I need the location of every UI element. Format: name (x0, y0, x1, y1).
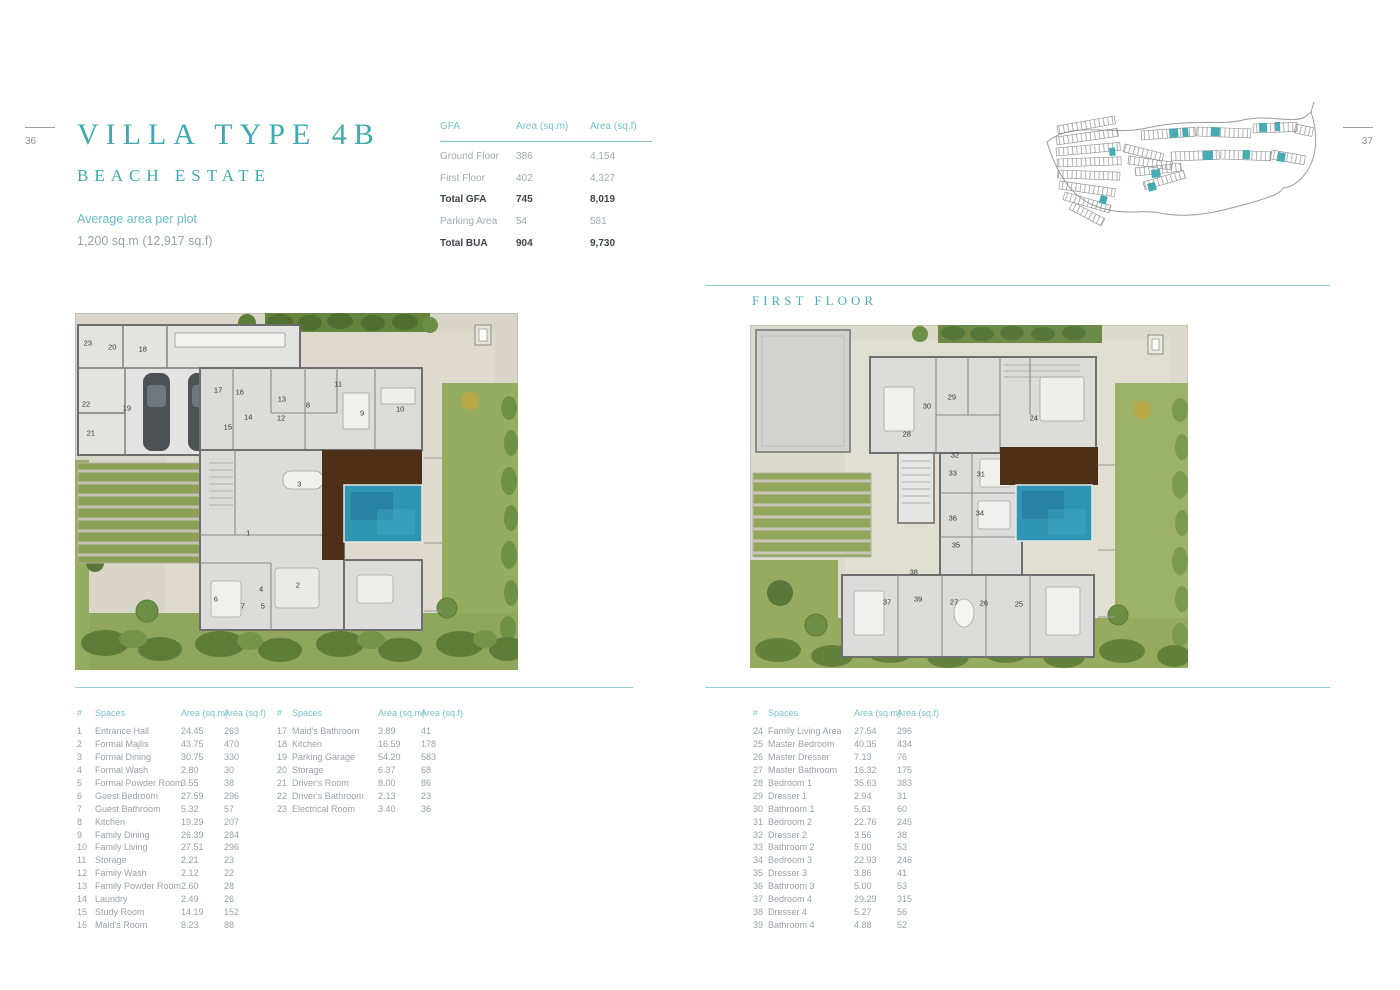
num: 22 (277, 789, 292, 802)
num: 39 (753, 918, 768, 931)
num: 2 (77, 738, 95, 751)
sqm: 29.29 (854, 893, 897, 906)
space-row: 20Storage6.3768 (277, 764, 461, 777)
spaces-header-row: # Spaces Area (sq.m) Area (sq.f) (753, 708, 937, 725)
name: Entrance Hall (95, 725, 181, 738)
sqm: 2.12 (181, 867, 224, 880)
name: Bedroom 3 (768, 854, 854, 867)
sqm: 27.59 (181, 789, 224, 802)
sqm: 386 (516, 142, 590, 168)
room-number: 3 (297, 480, 301, 488)
sqf: 76 (897, 751, 937, 764)
sqm: 24.45 (181, 725, 224, 738)
sqf: 8,019 (590, 189, 652, 211)
sqm: 16.59 (378, 738, 421, 751)
sqf: 296 (897, 725, 937, 738)
sqf: 38 (897, 828, 937, 841)
room-number: 9 (360, 409, 364, 417)
sqf: 23 (421, 789, 461, 802)
sqm: 2.13 (378, 789, 421, 802)
col-num: # (277, 708, 292, 725)
name: Formal Wash (95, 764, 181, 777)
num: 12 (77, 867, 95, 880)
sqf: 22 (224, 867, 264, 880)
num: 32 (753, 828, 768, 841)
space-row: 32Dresser 23.5638 (753, 828, 937, 841)
space-row: 18Kitchen16.59178 (277, 738, 461, 751)
room-number: 8 (306, 401, 310, 409)
room-number: 33 (949, 469, 957, 477)
sqm: 43.75 (181, 738, 224, 751)
site-map-graphic (1043, 100, 1325, 228)
space-row: 1Entrance Hall24.45263 (77, 725, 264, 738)
sqf: 296 (224, 789, 264, 802)
sqf: 175 (897, 764, 937, 777)
gfa-header-sqf: Area (sq.f) (590, 121, 652, 142)
sqf: 28 (224, 880, 264, 893)
sqm: 904 (516, 232, 590, 254)
sqm: 3.56 (854, 828, 897, 841)
page-rule-right (1343, 127, 1373, 128)
col-spaces: Spaces (768, 708, 854, 725)
col-spaces: Spaces (292, 708, 378, 725)
room-number: 13 (278, 395, 286, 403)
space-row: 16Maid's Room8.2388 (77, 918, 264, 931)
sqf: 41 (897, 867, 937, 880)
name: Storage (292, 764, 378, 777)
name: Bathroom 3 (768, 880, 854, 893)
name: Family Living (95, 841, 181, 854)
sqm: 16.32 (854, 764, 897, 777)
sqm: 14.19 (181, 905, 224, 918)
sqm: 7.13 (854, 751, 897, 764)
num: 11 (77, 854, 95, 867)
room-number: 21 (87, 429, 95, 437)
sqm: 27.51 (181, 841, 224, 854)
room-number: 2 (296, 581, 300, 589)
space-row: 22Driver's Bathroom2.1323 (277, 789, 461, 802)
sqf: 315 (897, 893, 937, 906)
sqf: 470 (224, 738, 264, 751)
first-floor-top-line (705, 285, 1330, 286)
sqf: 296 (224, 841, 264, 854)
sqf: 68 (421, 764, 461, 777)
sqf: 23 (224, 854, 264, 867)
room-number: 5 (261, 602, 265, 610)
name: Bathroom 1 (768, 802, 854, 815)
sqm: 22.76 (854, 815, 897, 828)
sqm: 3.55 (181, 777, 224, 790)
sqf: 60 (897, 802, 937, 815)
name: Driver's Room (292, 777, 378, 790)
num: 4 (77, 764, 95, 777)
name: Dresser 1 (768, 789, 854, 802)
space-row: 17Maid's Bathroom3.8941 (277, 725, 461, 738)
num: 36 (753, 880, 768, 893)
space-row: 36Bathroom 35.0053 (753, 880, 937, 893)
name: Family Living Area (768, 725, 854, 738)
col-sqf: Area (sq.f) (897, 708, 937, 725)
room-number: 37 (883, 598, 891, 606)
space-row: 37Bedroom 429.29315 (753, 893, 937, 906)
space-row: 23Electrical Room3.4036 (277, 802, 461, 815)
name: Study Room (95, 905, 181, 918)
num: 33 (753, 841, 768, 854)
sqf: 4,327 (590, 168, 652, 190)
sqm: 6.37 (378, 764, 421, 777)
room-number: 32 (951, 451, 959, 459)
num: 16 (77, 918, 95, 931)
name: Dresser 3 (768, 867, 854, 880)
name: Formal Powder Room (95, 777, 181, 790)
room-number: 15 (224, 423, 232, 431)
title-block: VILLA TYPE 4B BEACH ESTATE Average area … (77, 118, 381, 248)
sqf: 38 (224, 777, 264, 790)
room-number: 27 (950, 598, 958, 606)
room-number: 28 (903, 430, 911, 438)
sqm: 402 (516, 168, 590, 190)
sqf: 30 (224, 764, 264, 777)
name: Family Powder Room (95, 880, 181, 893)
ground-floor-plan-graphic (75, 313, 518, 670)
sqm: 8.23 (181, 918, 224, 931)
label: Total GFA (440, 189, 516, 211)
site-map (1043, 100, 1325, 228)
sqf: 581 (590, 211, 652, 233)
sqm: 745 (516, 189, 590, 211)
sqm: 54.20 (378, 751, 421, 764)
room-number: 34 (976, 509, 984, 517)
space-row: 33Bathroom 25.0053 (753, 841, 937, 854)
sqf: 36 (421, 802, 461, 815)
gfa-row: Total BUA9049,730 (440, 232, 652, 254)
space-row: 28Bedroom 135.63383 (753, 777, 937, 790)
name: Bedroom 4 (768, 893, 854, 906)
space-row: 29Dresser 12.9431 (753, 789, 937, 802)
col-sqf: Area (sq.f) (224, 708, 264, 725)
sqm: 26.39 (181, 828, 224, 841)
num: 1 (77, 725, 95, 738)
gfa-header-sqm: Area (sq.m) (516, 121, 590, 142)
sqf: 86 (421, 777, 461, 790)
space-row: 15Study Room14.19152 (77, 905, 264, 918)
space-row: 24Family Living Area27.54296 (753, 725, 937, 738)
num: 10 (77, 841, 95, 854)
spaces-header-row: # Spaces Area (sq.m) Area (sq.f) (77, 708, 264, 725)
num: 29 (753, 789, 768, 802)
col-num: # (753, 708, 768, 725)
name: Formal Majlis (95, 738, 181, 751)
name: Driver's Bathroom (292, 789, 378, 802)
name: Dresser 4 (768, 905, 854, 918)
room-number: 11 (334, 380, 342, 388)
sqm: 3.40 (378, 802, 421, 815)
sqm: 5.61 (854, 802, 897, 815)
sqf: 245 (897, 815, 937, 828)
room-number: 14 (244, 413, 252, 421)
name: Bathroom 2 (768, 841, 854, 854)
spaces-header-row: # Spaces Area (sq.m) Area (sq.f) (277, 708, 461, 725)
sqf: 207 (224, 815, 264, 828)
sqm: 5.32 (181, 802, 224, 815)
sqm: 2.21 (181, 854, 224, 867)
room-number: 17 (214, 386, 222, 394)
label: Parking Area (440, 211, 516, 233)
space-row: 10Family Living27.51296 (77, 841, 264, 854)
gfa-header-row: GFA Area (sq.m) Area (sq.f) (440, 121, 652, 142)
room-number: 19 (123, 404, 131, 412)
sqm: 19.29 (181, 815, 224, 828)
name: Master Bedroom (768, 738, 854, 751)
num: 5 (77, 777, 95, 790)
sqf: 9,730 (590, 232, 652, 254)
room-number: 29 (948, 393, 956, 401)
sqf: 383 (897, 777, 937, 790)
room-number: 38 (910, 568, 918, 576)
name: Guest Bedroom (95, 789, 181, 802)
num: 21 (277, 777, 292, 790)
num: 23 (277, 802, 292, 815)
room-number: 16 (236, 388, 244, 396)
num: 37 (753, 893, 768, 906)
sqf: 41 (421, 725, 461, 738)
name: Electrical Room (292, 802, 378, 815)
first-floor-label: FIRST FLOOR (752, 293, 877, 309)
page-number-right-value: 37 (1343, 136, 1373, 147)
page-title: VILLA TYPE 4B (77, 118, 381, 152)
first-floor-plan: 24252627282930313233343536373839 (750, 325, 1188, 668)
col-num: # (77, 708, 95, 725)
sqf: 56 (897, 905, 937, 918)
name: Storage (95, 854, 181, 867)
space-row: 4Formal Wash2.8030 (77, 764, 264, 777)
num: 18 (277, 738, 292, 751)
sqf: 246 (897, 854, 937, 867)
num: 8 (77, 815, 95, 828)
room-number: 26 (980, 599, 988, 607)
sqf: 178 (421, 738, 461, 751)
gfa-row: Total GFA7458,019 (440, 189, 652, 211)
page-rule-left (25, 127, 55, 128)
col-sqm: Area (sq.m) (181, 708, 224, 725)
space-row: 25Master Bedroom40.35434 (753, 738, 937, 751)
num: 17 (277, 725, 292, 738)
room-number: 22 (82, 400, 90, 408)
page-number-right: 37 (1343, 127, 1373, 147)
sqf: 53 (897, 880, 937, 893)
room-number: 4 (259, 585, 263, 593)
space-row: 35Dresser 33.8641 (753, 867, 937, 880)
sqf: 31 (897, 789, 937, 802)
sqm: 4.88 (854, 918, 897, 931)
room-number: 12 (277, 414, 285, 422)
num: 30 (753, 802, 768, 815)
sqm: 27.54 (854, 725, 897, 738)
sqf: 330 (224, 751, 264, 764)
space-row: 38Dresser 45.2756 (753, 905, 937, 918)
num: 19 (277, 751, 292, 764)
left-divider-line (75, 687, 633, 688)
name: Dresser 2 (768, 828, 854, 841)
gfa-table: GFA Area (sq.m) Area (sq.f) Ground Floor… (440, 121, 652, 254)
sqf: 583 (421, 751, 461, 764)
name: Kitchen (292, 738, 378, 751)
name: Family Wash (95, 867, 181, 880)
space-row: 31Bedroom 222.76245 (753, 815, 937, 828)
sqm: 8.00 (378, 777, 421, 790)
sqm: 5.27 (854, 905, 897, 918)
space-row: 34Bedroom 322.93246 (753, 854, 937, 867)
sqm: 5.00 (854, 841, 897, 854)
first-floor-plan-graphic (750, 325, 1188, 668)
name: Kitchen (95, 815, 181, 828)
sqm: 3.86 (854, 867, 897, 880)
space-row: 21Driver's Room8.0086 (277, 777, 461, 790)
brochure-page: 36 37 VILLA TYPE 4B BEACH ESTATE Average… (0, 0, 1400, 990)
space-row: 5Formal Powder Room3.5538 (77, 777, 264, 790)
space-row: 3Formal Dining30.75330 (77, 751, 264, 764)
name: Maid's Room (95, 918, 181, 931)
space-row: 39Bathroom 44.8852 (753, 918, 937, 931)
avg-area-label: Average area per plot (77, 212, 381, 226)
space-row: 19Parking Garage54.20583 (277, 751, 461, 764)
gfa-row: Parking Area54581 (440, 211, 652, 233)
sqm: 2.80 (181, 764, 224, 777)
sqm: 2.94 (854, 789, 897, 802)
sqm: 2.49 (181, 893, 224, 906)
room-number: 35 (952, 541, 960, 549)
space-row: 11Storage2.2123 (77, 854, 264, 867)
room-number: 6 (214, 595, 218, 603)
page-number-left-value: 36 (25, 136, 55, 147)
label: First Floor (440, 168, 516, 190)
gfa-header: GFA (440, 121, 516, 142)
num: 20 (277, 764, 292, 777)
sqm: 40.35 (854, 738, 897, 751)
name: Laundry (95, 893, 181, 906)
num: 6 (77, 789, 95, 802)
space-row: 7Guest Bathroom5.3257 (77, 802, 264, 815)
room-number: 31 (977, 470, 985, 478)
num: 14 (77, 893, 95, 906)
name: Family Dining (95, 828, 181, 841)
spaces-table-ground-1: # Spaces Area (sq.m) Area (sq.f) 1Entran… (77, 708, 264, 931)
sqm: 35.63 (854, 777, 897, 790)
name: Bedroom 2 (768, 815, 854, 828)
sqf: 4,154 (590, 142, 652, 168)
col-sqm: Area (sq.m) (378, 708, 421, 725)
space-row: 9Family Dining26.39284 (77, 828, 264, 841)
num: 15 (77, 905, 95, 918)
sqf: 263 (224, 725, 264, 738)
sqm: 2.60 (181, 880, 224, 893)
space-row: 12Family Wash2.1222 (77, 867, 264, 880)
label: Ground Floor (440, 142, 516, 168)
room-number: 30 (923, 402, 931, 410)
space-row: 30Bathroom 15.6160 (753, 802, 937, 815)
room-number: 25 (1015, 600, 1023, 608)
sqf: 284 (224, 828, 264, 841)
name: Parking Garage (292, 751, 378, 764)
col-spaces: Spaces (95, 708, 181, 725)
num: 34 (753, 854, 768, 867)
space-row: 8Kitchen19.29207 (77, 815, 264, 828)
room-number: 36 (949, 514, 957, 522)
sqf: 57 (224, 802, 264, 815)
ground-floor-plan: 1234567891011121314151617181920212223 (75, 313, 518, 670)
name: Guest Bathroom (95, 802, 181, 815)
sqf: 53 (897, 841, 937, 854)
num: 7 (77, 802, 95, 815)
num: 13 (77, 880, 95, 893)
num: 28 (753, 777, 768, 790)
sqf: 152 (224, 905, 264, 918)
avg-area-value: 1,200 sq.m (12,917 sq.f) (77, 234, 381, 248)
name: Master Bathroom (768, 764, 854, 777)
num: 26 (753, 751, 768, 764)
name: Master Dresser (768, 751, 854, 764)
name: Bathroom 4 (768, 918, 854, 931)
col-sqf: Area (sq.f) (421, 708, 461, 725)
room-number: 10 (396, 405, 404, 413)
sqf: 52 (897, 918, 937, 931)
name: Maid's Bathroom (292, 725, 378, 738)
sqf: 434 (897, 738, 937, 751)
spaces-table-ground-2: # Spaces Area (sq.m) Area (sq.f) 17Maid'… (277, 708, 461, 815)
name: Formal Dining (95, 751, 181, 764)
page-subtitle: BEACH ESTATE (77, 166, 381, 186)
sqm: 54 (516, 211, 590, 233)
space-row: 27Master Bathroom16.32175 (753, 764, 937, 777)
num: 35 (753, 867, 768, 880)
page-number-left: 36 (25, 127, 55, 147)
num: 38 (753, 905, 768, 918)
right-divider-line (705, 687, 1330, 688)
gfa-row: Ground Floor3864,154 (440, 142, 652, 168)
space-row: 26Master Dresser7.1376 (753, 751, 937, 764)
space-row: 2Formal Majlis43.75470 (77, 738, 264, 751)
sqf: 88 (224, 918, 264, 931)
space-row: 14Laundry2.4926 (77, 893, 264, 906)
room-number: 20 (108, 343, 116, 351)
num: 27 (753, 764, 768, 777)
space-row: 13Family Powder Room2.6028 (77, 880, 264, 893)
sqm: 3.89 (378, 725, 421, 738)
name: Bedroom 1 (768, 777, 854, 790)
room-number: 39 (914, 595, 922, 603)
num: 9 (77, 828, 95, 841)
col-sqm: Area (sq.m) (854, 708, 897, 725)
room-number: 24 (1030, 414, 1038, 422)
room-number: 1 (246, 529, 250, 537)
spaces-table-first-floor: # Spaces Area (sq.m) Area (sq.f) 24Famil… (753, 708, 937, 931)
num: 25 (753, 738, 768, 751)
sqm: 22.93 (854, 854, 897, 867)
label: Total BUA (440, 232, 516, 254)
space-row: 6Guest Bedroom27.59296 (77, 789, 264, 802)
num: 31 (753, 815, 768, 828)
num: 3 (77, 751, 95, 764)
room-number: 7 (241, 602, 245, 610)
room-number: 23 (84, 339, 92, 347)
gfa-row: First Floor4024,327 (440, 168, 652, 190)
room-number: 18 (139, 345, 147, 353)
sqm: 30.75 (181, 751, 224, 764)
num: 24 (753, 725, 768, 738)
sqm: 5.00 (854, 880, 897, 893)
sqf: 26 (224, 893, 264, 906)
